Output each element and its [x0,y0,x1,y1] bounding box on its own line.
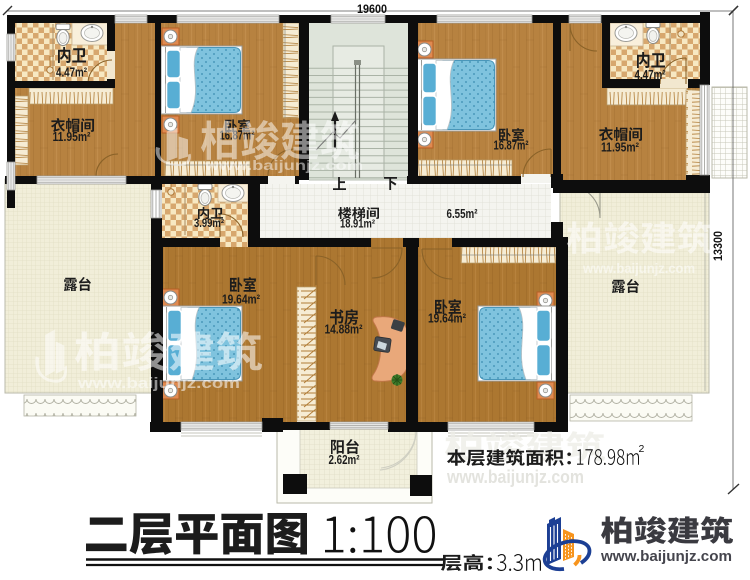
svg-text:4.47m²: 4.47m² [56,66,87,80]
svg-text:11.95m²: 11.95m² [601,141,639,155]
svg-text:3.99m²: 3.99m² [194,218,224,230]
svg-text:14.88m²: 14.88m² [325,323,363,337]
svg-text:www.baijunjz.com: www.baijunjz.com [77,375,240,392]
svg-text:19600: 19600 [357,2,387,16]
svg-text:19.64m²: 19.64m² [222,293,260,307]
svg-text:www.baijunjz.com: www.baijunjz.com [582,260,695,276]
svg-text:www.baijunjz.com: www.baijunjz.com [446,467,584,487]
svg-text:www.baijunjz.com: www.baijunjz.com [600,549,732,565]
svg-text:13300: 13300 [711,231,725,261]
svg-text:11.95m²: 11.95m² [53,130,91,144]
svg-text:2: 2 [639,443,645,455]
svg-text:2.62m²: 2.62m² [329,453,360,467]
svg-text:18.91m²: 18.91m² [340,219,375,231]
svg-text:4.47m²: 4.47m² [635,68,666,82]
svg-text:16.87m²: 16.87m² [494,139,529,153]
svg-text:www.baijunjz.com: www.baijunjz.com [204,157,363,173]
svg-text:6.55m²: 6.55m² [447,207,478,221]
svg-text:19.64m²: 19.64m² [428,312,466,326]
